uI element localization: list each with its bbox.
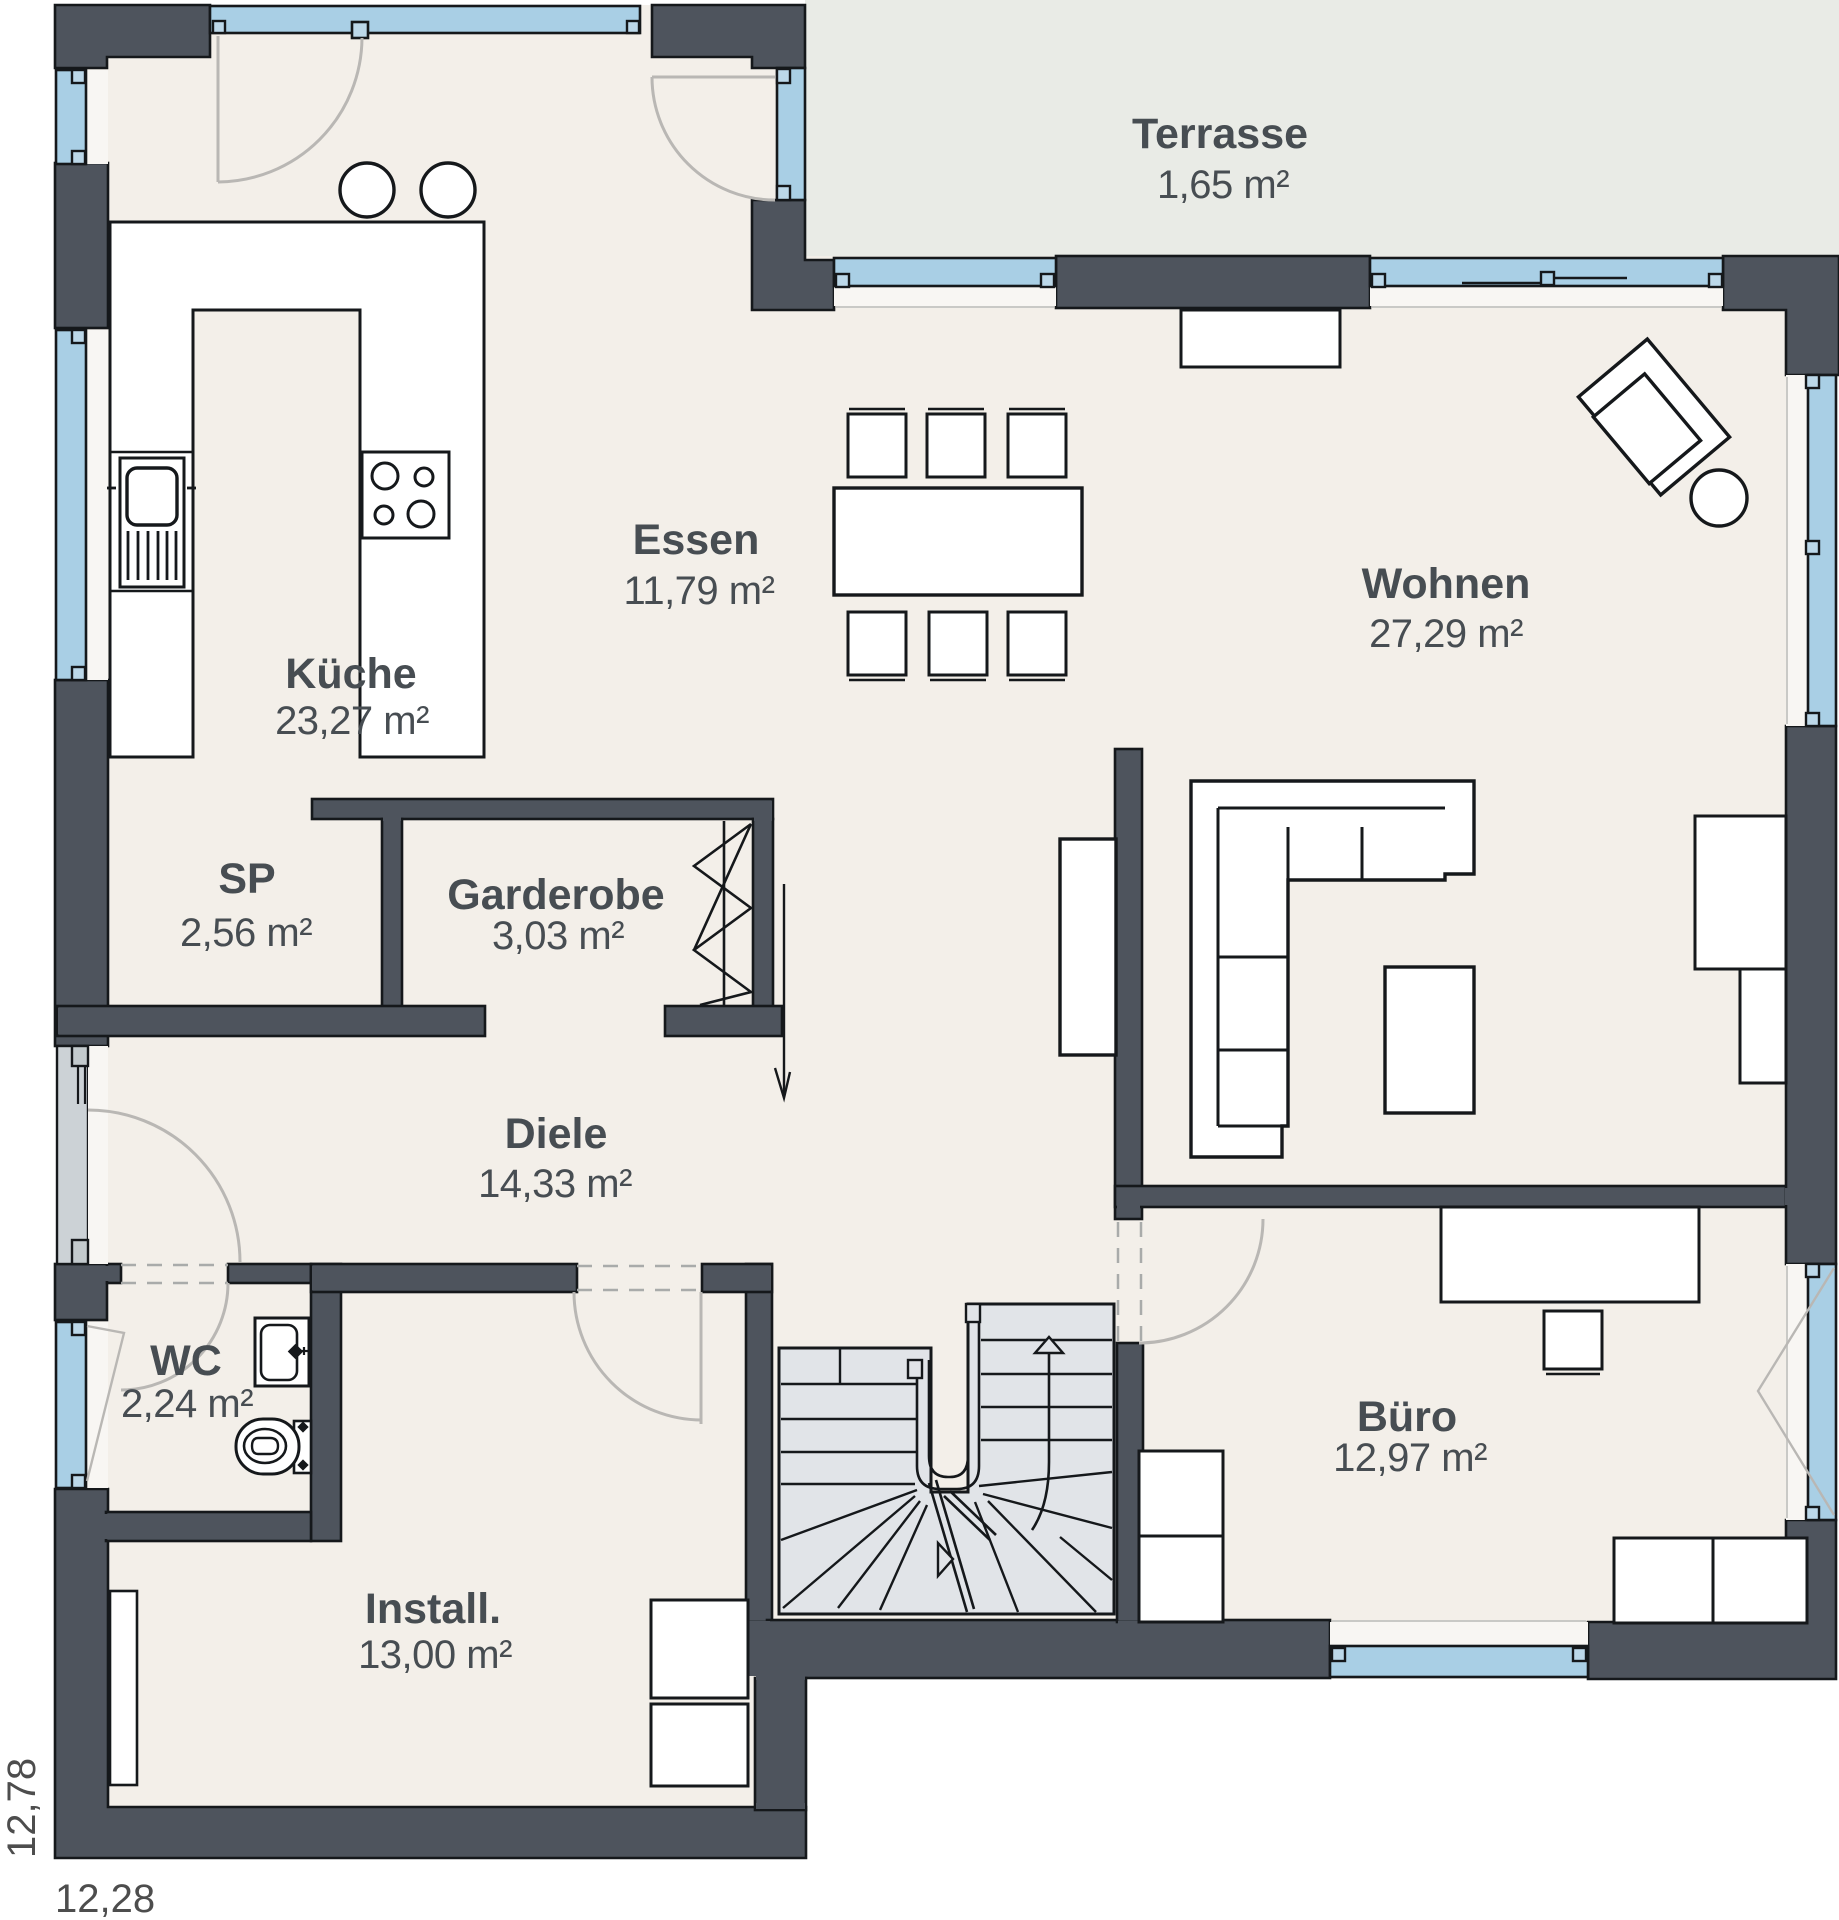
svg-text:3,03 m²: 3,03 m² (492, 914, 624, 958)
svg-text:11,79 m²: 11,79 m² (624, 569, 775, 613)
svg-text:Install.: Install. (365, 1585, 501, 1633)
svg-text:Essen: Essen (633, 516, 760, 564)
svg-text:27,29 m²: 27,29 m² (1369, 612, 1523, 656)
svg-text:Küche: Küche (285, 650, 416, 698)
svg-text:12,78: 12,78 (0, 1758, 44, 1858)
svg-text:Terrasse: Terrasse (1132, 110, 1308, 158)
svg-text:Wohnen: Wohnen (1362, 560, 1531, 608)
svg-text:12,97 m²: 12,97 m² (1333, 1436, 1487, 1480)
svg-text:2,56 m²: 2,56 m² (180, 911, 312, 955)
svg-text:Diele: Diele (505, 1110, 608, 1158)
svg-text:2,24 m²: 2,24 m² (121, 1382, 253, 1426)
svg-text:14,33 m²: 14,33 m² (478, 1162, 632, 1206)
svg-text:12,28: 12,28 (55, 1877, 155, 1920)
svg-text:WC: WC (150, 1337, 222, 1385)
svg-text:23,27 m²: 23,27 m² (275, 699, 429, 743)
svg-text:Büro: Büro (1357, 1393, 1457, 1441)
svg-text:13,00 m²: 13,00 m² (358, 1633, 512, 1677)
svg-text:1,65 m²: 1,65 m² (1157, 163, 1289, 207)
svg-text:Garderobe: Garderobe (447, 871, 664, 919)
svg-text:SP: SP (218, 855, 275, 903)
